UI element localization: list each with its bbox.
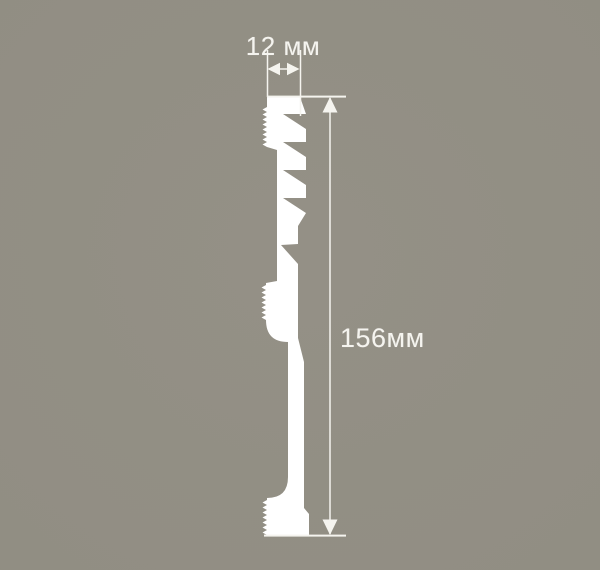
width-arrowhead-left (268, 63, 281, 75)
height-dimension-label: 156мм (340, 323, 425, 354)
bottom-reference-line (264, 535, 346, 537)
width-dimension-label: 12 мм (240, 31, 326, 62)
width-arrowhead-right (287, 63, 300, 75)
top-reference-line (267, 96, 346, 98)
height-arrowhead-up (323, 97, 338, 113)
profile-shape (262, 97, 310, 535)
height-dimension-line (329, 98, 331, 534)
profile-diagram (0, 0, 600, 570)
height-arrowhead-down (323, 520, 338, 536)
diagram-background: 12 мм 156мм (0, 0, 600, 570)
